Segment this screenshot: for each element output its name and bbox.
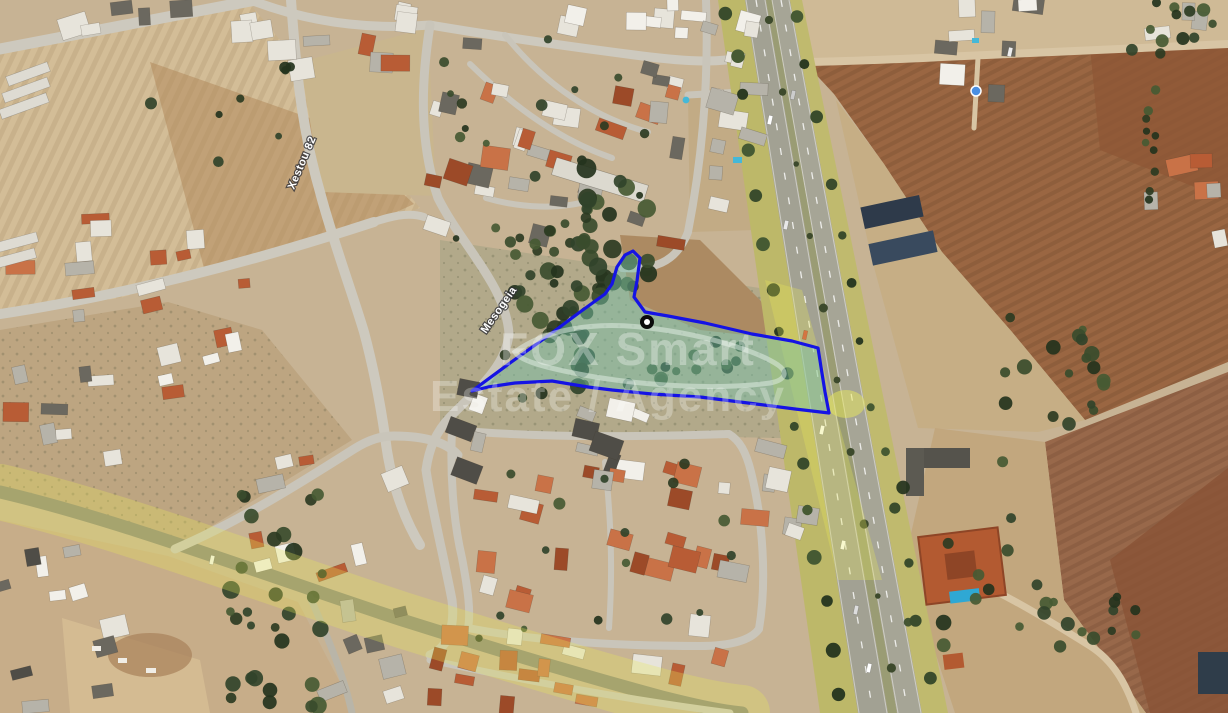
building — [303, 35, 330, 46]
tree — [1002, 544, 1014, 556]
tree — [245, 672, 257, 684]
tree — [1197, 3, 1210, 16]
tree — [1037, 606, 1051, 620]
building — [499, 695, 515, 713]
building — [688, 614, 711, 638]
watermark-line1: FOX Smart — [500, 323, 756, 375]
building-roof — [709, 166, 723, 181]
building — [65, 261, 95, 276]
tree — [718, 515, 730, 527]
median-tree — [887, 663, 896, 672]
tree — [243, 607, 252, 616]
building — [649, 101, 669, 124]
building — [79, 366, 92, 383]
tree — [641, 254, 655, 268]
median-tree — [807, 233, 813, 239]
building-roof — [138, 8, 150, 26]
satellite-map[interactable]: Mesogeia Xestou 82 FOX Smart Estate / Ag… — [0, 0, 1228, 713]
tree — [1143, 128, 1150, 135]
building-roof — [92, 683, 114, 698]
building-roof — [1018, 0, 1037, 12]
highway-verge-tree — [904, 558, 913, 567]
tree — [236, 95, 244, 103]
tree — [305, 700, 317, 712]
building — [381, 55, 410, 71]
highway-verge-tree — [790, 422, 799, 431]
tree — [544, 225, 555, 236]
building-roof — [612, 86, 634, 107]
building-roof — [162, 385, 185, 400]
tree — [970, 593, 982, 605]
tree — [614, 175, 627, 188]
tree — [530, 171, 541, 182]
building-roof — [55, 428, 72, 440]
tree — [576, 235, 590, 249]
tree — [1146, 187, 1154, 195]
highway-verge-tree — [826, 643, 841, 658]
tree — [244, 509, 259, 524]
building-roof — [535, 475, 554, 494]
building — [238, 278, 250, 288]
highway-verge-tree — [910, 615, 922, 627]
tree — [506, 470, 515, 479]
tree — [247, 622, 255, 630]
building — [1190, 154, 1212, 169]
building — [675, 27, 688, 39]
tree — [983, 584, 995, 596]
tree — [1142, 115, 1150, 123]
tree — [600, 475, 608, 483]
tree — [1113, 593, 1121, 601]
building-roof — [75, 241, 92, 262]
poi-dot[interactable] — [971, 86, 981, 96]
tree — [496, 612, 504, 620]
tree — [1189, 33, 1199, 43]
tree — [661, 613, 672, 624]
building — [267, 39, 296, 60]
building — [476, 550, 496, 573]
building-roof — [463, 38, 483, 50]
building-roof — [958, 0, 975, 17]
tree — [577, 155, 587, 165]
tree — [453, 235, 460, 242]
tree — [525, 270, 535, 280]
tree — [530, 239, 541, 250]
tree — [271, 623, 280, 632]
tree — [1156, 34, 1169, 47]
building — [554, 548, 569, 571]
building — [395, 11, 418, 33]
tree — [1208, 20, 1216, 28]
highway-verge-tree — [889, 503, 900, 514]
building-roof — [1190, 154, 1212, 169]
tree — [551, 265, 564, 278]
building-roof — [688, 614, 711, 638]
building-roof — [303, 35, 330, 46]
highway-verge-tree — [838, 231, 846, 239]
building-roof — [564, 4, 587, 26]
building-roof — [934, 40, 958, 55]
tree — [640, 129, 649, 138]
tree — [226, 607, 235, 616]
building — [110, 0, 133, 16]
tree — [679, 459, 690, 470]
tree — [1017, 359, 1032, 374]
tree — [1155, 48, 1165, 58]
highway-verge-tree — [742, 144, 755, 157]
building — [24, 547, 41, 566]
building-roof — [110, 0, 133, 16]
building — [103, 449, 122, 467]
tree — [515, 234, 524, 243]
building — [170, 0, 193, 18]
tree — [544, 35, 552, 43]
tree — [553, 498, 565, 510]
building — [550, 195, 568, 207]
tree — [1151, 85, 1160, 94]
tree — [997, 456, 1008, 467]
map-canvas[interactable]: Mesogeia Xestou 82 FOX Smart Estate / Ag… — [0, 0, 1228, 713]
tree — [145, 97, 157, 109]
tree — [1046, 340, 1061, 355]
highway-verge-tree — [749, 189, 762, 202]
dark-building — [1198, 652, 1228, 694]
building — [1018, 0, 1037, 12]
building — [75, 241, 92, 262]
building-roof — [24, 547, 41, 566]
tree — [447, 90, 454, 97]
median-tree — [765, 16, 773, 24]
building-roof — [73, 309, 85, 322]
tree — [213, 156, 224, 167]
building-roof — [550, 195, 568, 207]
tree — [1061, 617, 1075, 631]
building-roof — [499, 695, 515, 713]
tree — [600, 121, 609, 130]
highway-verge-tree — [756, 237, 770, 251]
highway-verge-tree — [807, 550, 822, 565]
highway-verge-tree — [731, 49, 745, 63]
tree — [1126, 44, 1138, 56]
building-roof — [186, 229, 205, 249]
building-roof — [238, 278, 250, 288]
building — [22, 699, 50, 713]
tree — [1006, 513, 1016, 523]
highway-verge-tree — [847, 278, 857, 288]
building-roof — [649, 101, 669, 124]
tree — [1062, 417, 1076, 431]
building — [612, 86, 634, 107]
building — [186, 229, 205, 249]
tree — [505, 236, 516, 247]
building — [718, 482, 730, 494]
watermark-line2: Estate / Agency — [430, 372, 786, 421]
tree — [1000, 367, 1010, 377]
building — [162, 385, 185, 400]
highway-verge-tree — [832, 688, 845, 701]
highway-verge-tree — [826, 179, 837, 190]
building — [948, 29, 974, 41]
building — [463, 38, 483, 50]
tree — [668, 478, 679, 489]
tree — [1142, 139, 1150, 147]
tree — [727, 551, 736, 560]
building-roof — [681, 10, 707, 22]
building — [958, 0, 975, 17]
building — [92, 683, 114, 698]
tree — [1184, 6, 1195, 17]
tree — [542, 546, 550, 554]
tree — [614, 74, 622, 82]
tree — [589, 258, 607, 276]
building — [480, 145, 510, 170]
building-roof — [765, 467, 792, 493]
building — [564, 4, 587, 26]
highway-verge-tree — [799, 59, 809, 69]
building — [667, 487, 692, 510]
building — [740, 508, 769, 526]
building-roof — [250, 20, 274, 41]
building-roof — [90, 220, 111, 237]
tree — [550, 279, 559, 288]
tree — [1077, 627, 1086, 636]
building — [535, 475, 554, 494]
tree — [638, 199, 656, 217]
tree — [1172, 10, 1182, 20]
tree — [622, 559, 630, 567]
building-roof — [667, 487, 692, 510]
highway-verge-tree — [737, 89, 748, 100]
building-roof — [427, 688, 442, 706]
tree — [1087, 632, 1100, 645]
building-roof — [476, 550, 496, 573]
tree — [1146, 25, 1155, 34]
building-roof — [395, 11, 418, 33]
tree — [696, 609, 703, 616]
tree — [1076, 334, 1088, 346]
tree — [603, 240, 622, 259]
building-roof — [41, 403, 68, 415]
building-roof — [948, 29, 974, 41]
highway-verge-tree — [802, 505, 812, 515]
building-roof — [299, 455, 315, 466]
building — [427, 688, 442, 706]
tree — [275, 133, 282, 140]
tree — [1081, 353, 1091, 363]
building-roof — [150, 250, 167, 265]
building — [744, 21, 760, 38]
tree — [602, 207, 617, 222]
building — [41, 403, 68, 415]
tree — [1151, 168, 1159, 176]
highway-verge-tree — [856, 337, 864, 345]
building-roof — [744, 21, 760, 38]
median-tree — [779, 88, 786, 95]
building-roof — [267, 39, 296, 60]
tree — [462, 125, 469, 132]
median-tree — [875, 593, 881, 599]
tree — [571, 280, 583, 292]
building-roof — [170, 0, 193, 18]
tree — [1005, 313, 1015, 323]
tree — [1087, 361, 1100, 374]
tree — [571, 86, 578, 93]
tree — [267, 532, 282, 547]
building — [988, 84, 1005, 102]
tree — [1048, 411, 1059, 422]
tree — [237, 490, 247, 500]
median-tree — [793, 161, 799, 167]
building-roof — [3, 402, 29, 422]
highway-verge-tree — [810, 110, 823, 123]
tree — [620, 528, 629, 537]
tree — [312, 488, 324, 500]
tree — [1032, 579, 1043, 590]
tree — [1131, 630, 1140, 639]
building — [73, 309, 85, 322]
building — [934, 40, 958, 55]
building — [681, 10, 707, 22]
tree — [594, 616, 603, 625]
highway-verge-tree — [791, 10, 804, 23]
tree — [1144, 106, 1153, 115]
tree — [274, 633, 289, 648]
building — [626, 12, 646, 30]
tree — [561, 219, 570, 228]
building-roof — [981, 11, 995, 33]
tree — [216, 111, 223, 118]
tree — [936, 615, 952, 631]
tree — [1108, 627, 1116, 635]
building-roof — [554, 548, 569, 571]
tree — [226, 693, 237, 704]
tree — [1065, 369, 1073, 377]
building-roof — [65, 261, 95, 276]
building — [709, 166, 723, 181]
building — [250, 20, 274, 41]
tree — [1130, 605, 1140, 615]
building — [90, 220, 111, 237]
tree — [580, 192, 597, 209]
tree — [516, 295, 533, 312]
building — [299, 455, 315, 466]
tree — [1015, 622, 1024, 631]
tree — [510, 249, 521, 260]
building — [3, 402, 29, 422]
building-roof — [49, 590, 66, 602]
building-roof — [79, 366, 92, 383]
building-roof — [1207, 183, 1222, 198]
highway-verge-tree — [924, 672, 937, 685]
highway-verge-tree — [867, 403, 875, 411]
tree — [896, 481, 910, 495]
building — [49, 590, 66, 602]
tree — [455, 132, 465, 142]
tree — [305, 677, 320, 692]
building-roof — [667, 0, 679, 11]
tree — [1097, 378, 1110, 391]
building-roof — [103, 449, 122, 467]
median-tree — [834, 377, 841, 384]
tree — [1087, 400, 1095, 408]
tree — [973, 569, 985, 581]
building — [710, 138, 726, 154]
tree — [1150, 146, 1158, 154]
highway-verge-tree — [797, 458, 809, 470]
building-roof — [710, 138, 726, 154]
building — [1207, 183, 1222, 198]
building — [150, 250, 167, 265]
building-roof — [480, 145, 510, 170]
median-tree — [819, 304, 828, 313]
building — [667, 0, 679, 11]
building-roof — [718, 482, 730, 494]
highway-verge-tree — [881, 447, 890, 456]
tree — [1145, 196, 1153, 204]
building — [138, 8, 150, 26]
tree — [937, 638, 951, 652]
building-roof — [740, 508, 769, 526]
tree — [636, 192, 643, 199]
building-roof — [939, 63, 965, 85]
building — [765, 467, 792, 493]
median-tree — [847, 448, 855, 456]
building — [981, 11, 995, 33]
building-roof — [988, 84, 1005, 102]
building-roof — [381, 55, 410, 71]
tree — [457, 98, 467, 108]
tree — [263, 695, 277, 709]
tree — [549, 247, 559, 257]
tree — [483, 140, 490, 147]
tree — [1176, 32, 1189, 45]
tree — [1054, 640, 1066, 652]
tree — [536, 99, 548, 111]
building — [939, 63, 965, 85]
tree — [439, 57, 449, 67]
tree — [491, 223, 500, 232]
building-roof — [675, 27, 688, 39]
building — [55, 428, 72, 440]
tree — [225, 676, 240, 691]
tree — [1152, 132, 1160, 140]
building-roof — [22, 699, 50, 713]
tree — [943, 538, 954, 549]
tree — [279, 62, 291, 74]
tree — [999, 396, 1013, 410]
highway-verge-tree — [719, 7, 733, 21]
tree — [581, 213, 592, 224]
highway-verge-tree — [821, 595, 833, 607]
building-roof — [626, 12, 646, 30]
